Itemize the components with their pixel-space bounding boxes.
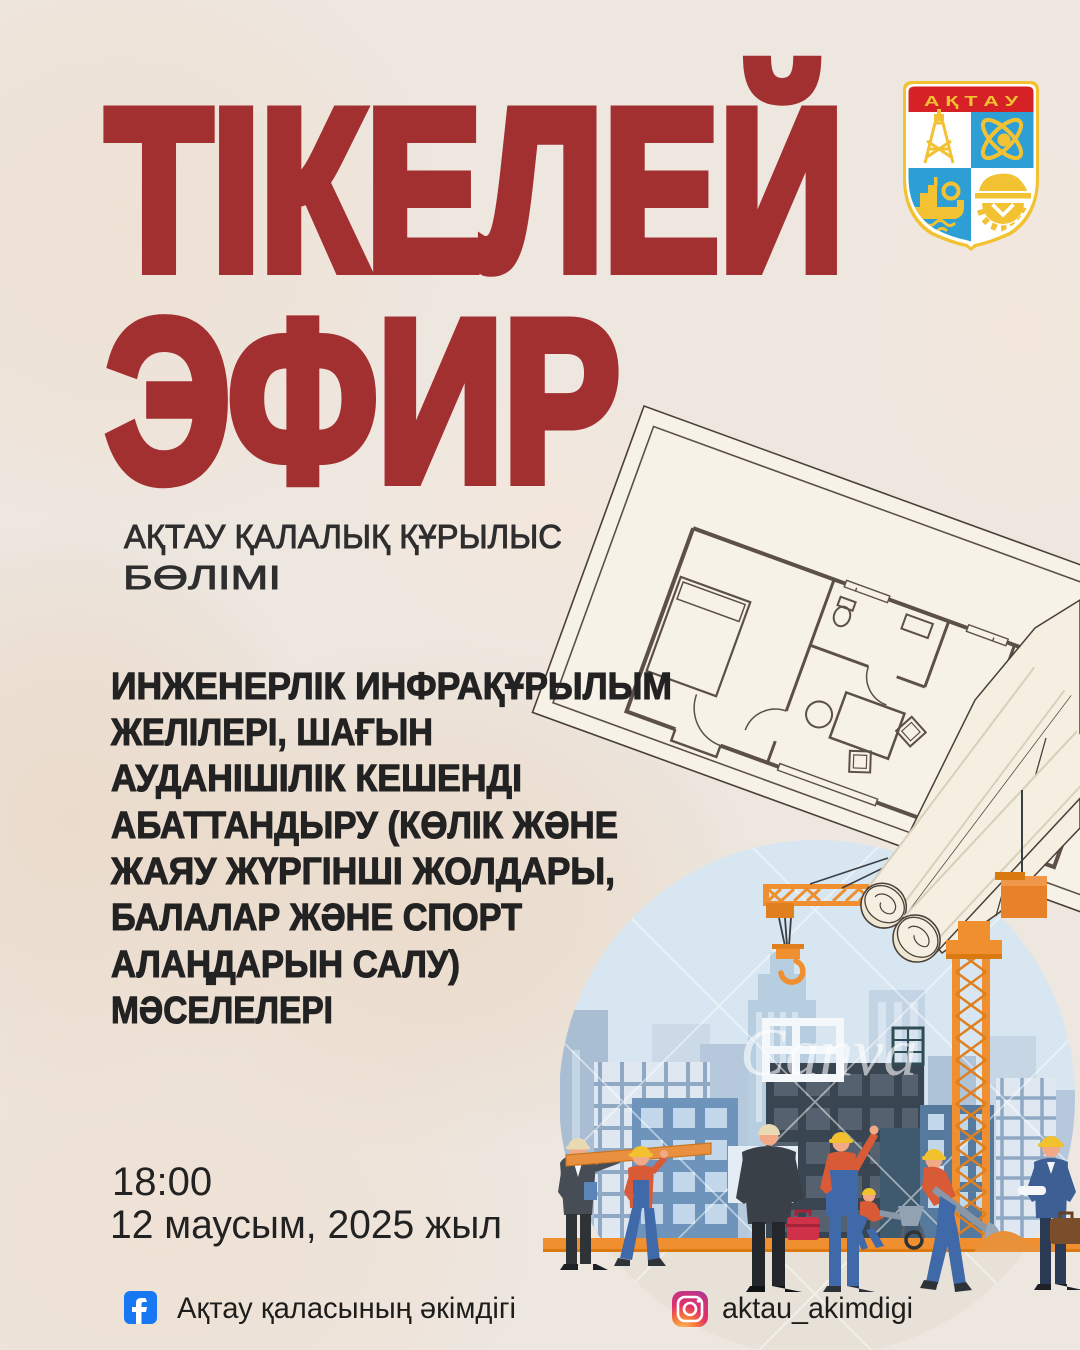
svg-text:12 маусым, 2025 жыл: 12 маусым, 2025 жыл — [110, 1203, 502, 1247]
svg-text:Ақтау қаласының әкімдігі: Ақтау қаласының әкімдігі — [177, 1292, 516, 1325]
svg-text:АҚТАУ ҚАЛАЛЫҚ ҚҰРЫЛЫС: АҚТАУ ҚАЛАЛЫҚ ҚҰРЫЛЫС — [124, 518, 562, 555]
svg-text:АУДАНІШІЛІК КЕШЕНДІ: АУДАНІШІЛІК КЕШЕНДІ — [111, 758, 522, 800]
svg-text:АБАТТАНДЫРУ (КӨЛІК ЖӘНЕ: АБАТТАНДЫРУ (КӨЛІК ЖӘНЕ — [111, 805, 618, 847]
svg-text:aktau_akimdigi: aktau_akimdigi — [722, 1292, 913, 1325]
svg-text:ЖАЯУ ЖҮРГІНШІ ЖОЛДАРЫ,: ЖАЯУ ЖҮРГІНШІ ЖОЛДАРЫ, — [110, 851, 615, 893]
svg-text:ЖЕЛІЛЕРІ, ШАҒЫН: ЖЕЛІЛЕРІ, ШАҒЫН — [110, 712, 433, 754]
svg-text:БӨЛІМІ: БӨЛІМІ — [123, 559, 281, 596]
svg-text:БАЛАЛАР ЖӘНЕ СПОРТ: БАЛАЛАР ЖӘНЕ СПОРТ — [111, 897, 522, 939]
svg-text:ЭФИР: ЭФИР — [106, 273, 620, 529]
svg-text:АЛАҢДАРЫН САЛУ): АЛАҢДАРЫН САЛУ) — [111, 944, 460, 986]
svg-text:18:00: 18:00 — [112, 1160, 212, 1204]
svg-text:А Қ Т А У: А Қ Т А У — [924, 93, 1019, 110]
svg-text:ИНЖЕНЕРЛІК ИНФРАҚҰРЫЛЫМ: ИНЖЕНЕРЛІК ИНФРАҚҰРЫЛЫМ — [111, 666, 672, 708]
svg-text:МӘСЕЛЕЛЕРІ: МӘСЕЛЕЛЕРІ — [111, 990, 333, 1032]
